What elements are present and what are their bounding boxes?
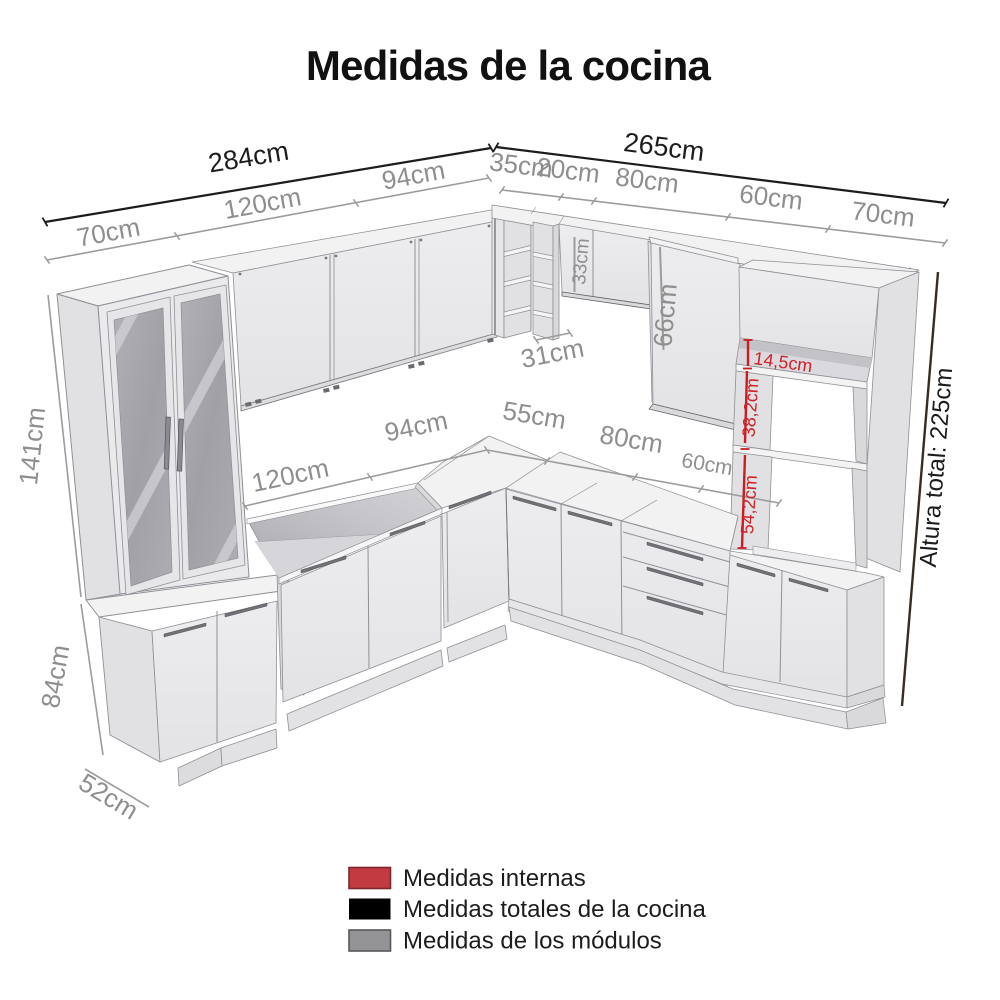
svg-text:66cm: 66cm [647, 282, 682, 348]
svg-text:54,2cm: 54,2cm [737, 474, 761, 534]
svg-text:33cm: 33cm [569, 237, 594, 285]
svg-text:Medidas totales de la cocina: Medidas totales de la cocina [403, 896, 707, 923]
svg-text:Medidas internas: Medidas internas [403, 865, 586, 892]
svg-text:Medidas de la cocina: Medidas de la cocina [306, 42, 712, 89]
svg-text:38,2cm: 38,2cm [738, 377, 762, 437]
svg-text:Medidas de los módulos: Medidas de los módulos [403, 928, 662, 955]
